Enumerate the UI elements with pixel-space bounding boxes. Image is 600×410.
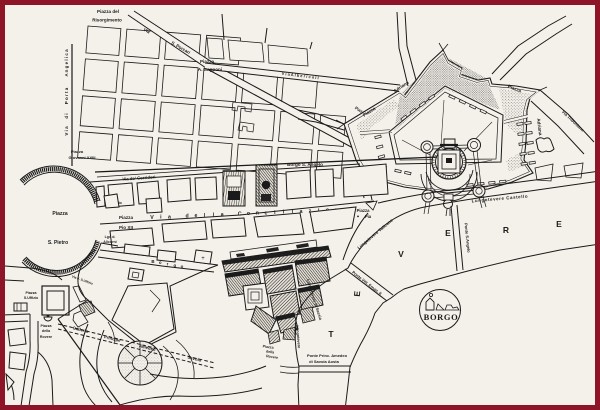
svg-text:Piazza: Piazza [119, 215, 133, 220]
svg-text:Pia: Pia [365, 214, 372, 219]
svg-text:V i a: V i a [64, 126, 69, 136]
svg-text:A n g e l i c a: A n g e l i c a [64, 49, 69, 77]
svg-text:B: B [151, 259, 154, 264]
svg-text:E: E [445, 228, 451, 238]
svg-text:P o r t a: P o r t a [64, 87, 69, 104]
svg-text:R: R [503, 225, 509, 235]
svg-text:e: e [194, 213, 197, 219]
svg-text:Piazza del: Piazza del [97, 9, 119, 14]
svg-text:Risorgimento: Risorgimento [92, 18, 122, 23]
svg-text:a: a [168, 214, 171, 220]
svg-text:V: V [150, 215, 154, 221]
svg-text:Piazza: Piazza [71, 149, 84, 154]
svg-text:E: E [556, 219, 562, 229]
svg-text:d i: d i [64, 113, 69, 118]
svg-text:r: r [167, 262, 169, 267]
svg-text:Lgo d.: Lgo d. [105, 235, 116, 239]
svg-text:Rovere: Rovere [40, 335, 52, 339]
svg-text:di Savoia Aosta: di Savoia Aosta [309, 359, 339, 364]
svg-text:C: C [238, 211, 242, 217]
svg-text:Borgo S. Angelo: Borgo S. Angelo [287, 162, 323, 167]
svg-text:S. Pietro: S. Pietro [48, 240, 68, 246]
svg-text:S.Uffizio: S.Uffizio [24, 296, 39, 300]
svg-text:BORGO: BORGO [424, 312, 459, 322]
svg-text:d: d [186, 214, 189, 220]
svg-text:Piazza: Piazza [52, 211, 68, 217]
svg-text:Giovanni XXIII: Giovanni XXIII [69, 155, 96, 160]
svg-text:o: o [247, 211, 250, 217]
svg-text:della: della [42, 329, 51, 333]
svg-text:a: a [221, 212, 224, 218]
svg-text:Piazza: Piazza [41, 324, 53, 328]
svg-text:A. Capponi: A. Capponi [198, 67, 222, 72]
svg-text:+: + [201, 256, 205, 262]
svg-text:n: n [256, 211, 259, 217]
svg-text:g: g [173, 263, 176, 268]
svg-text:Piazza: Piazza [200, 59, 214, 64]
svg-text:Piazza: Piazza [26, 291, 38, 295]
svg-text:o: o [181, 264, 184, 269]
svg-text:T: T [328, 329, 334, 339]
svg-text:Piazza: Piazza [357, 208, 370, 213]
svg-text:V: V [398, 249, 404, 259]
svg-text:Ponte Princ. Amedeo: Ponte Princ. Amedeo [307, 353, 348, 358]
